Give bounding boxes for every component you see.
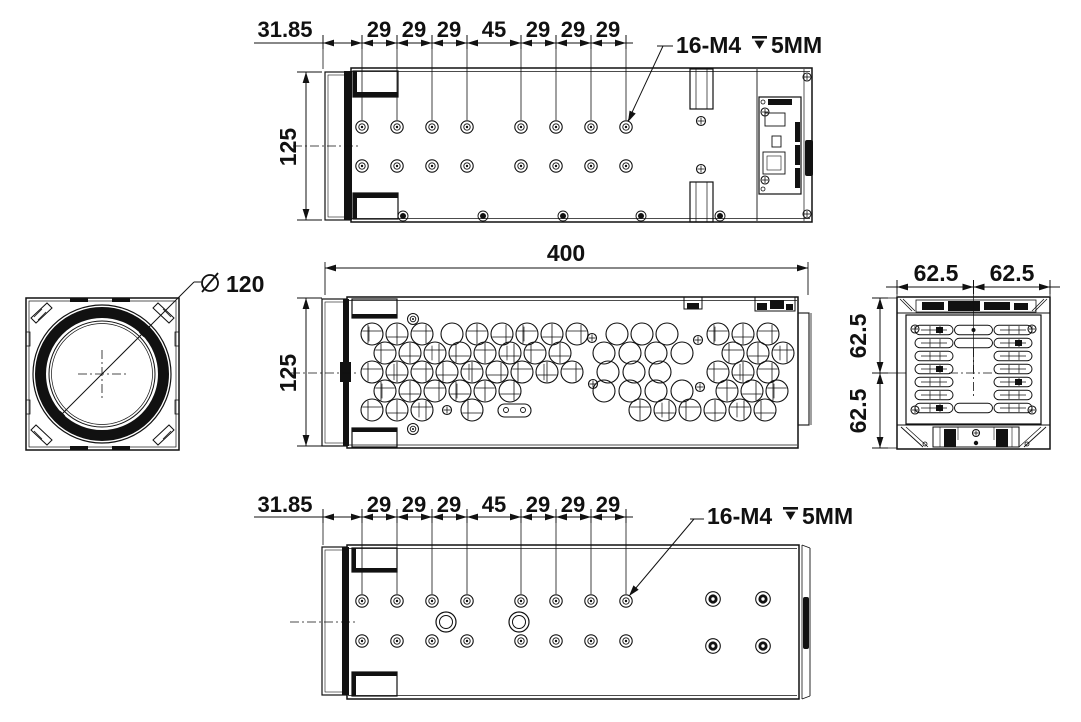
top-dim-chain [254,35,633,120]
callout-thread: 16-M4 [676,32,741,58]
drawing-primitive [996,429,1008,447]
top-view: 31.85 29 29 29 45 29 29 29 125 16-M4 5MM [254,17,822,222]
drawing-primitive [1015,340,1022,346]
bottom-view: 31.85 29 29 29 45 29 29 29 16-M4 5MM [254,492,853,699]
dim-31.85: 31.85 [257,492,312,517]
drawing-primitive [461,399,483,421]
drawing-primitive [499,342,521,364]
top-thread-callout: 16-M4 5MM [625,32,822,123]
drawing-primitive [625,640,627,642]
drawing-primitive [630,519,694,595]
drawing-primitive [521,408,526,413]
drawing-primitive [440,616,453,629]
drawing-primitive [31,303,52,323]
drawing-primitive [638,213,644,219]
dim-29: 29 [596,492,620,517]
drawing-primitive [566,323,588,345]
drawing-primitive [353,193,357,219]
drawing-primitive [687,303,699,309]
lens-diameter-callout: 120 [202,271,264,297]
drawing-primitive [690,69,713,109]
drawing-primitive [449,342,471,364]
drawing-primitive [590,165,592,167]
drawing-primitive [877,373,884,384]
rear-view: 62.5 62.5 62.5 62.5 [845,260,1060,449]
drawing-primitive [347,545,799,699]
drawing-primitive [412,428,414,430]
drawing-primitive [761,644,764,647]
drawing-primitive [431,165,433,167]
drawing-primitive [436,361,458,383]
drawing-primitive [361,165,363,167]
drawing-primitive [590,126,592,128]
drawing-primitive [352,314,397,318]
dim-29: 29 [367,17,391,42]
drawing-primitive [466,165,468,167]
drawing-primitive [486,361,508,383]
dim-125: 125 [275,354,301,393]
drawing-primitive [972,328,976,332]
drawing-primitive [361,600,363,602]
drawing-primitive [411,323,433,345]
dim-29: 29 [596,17,620,42]
drawing-primitive [707,323,729,345]
drawing-primitive [631,323,653,345]
drawing-primitive [153,425,174,445]
drawing-primitive [936,366,943,372]
drawing-primitive [424,380,446,402]
drawing-primitive [352,568,397,572]
drawing-primitive [555,165,557,167]
drawing-primitive [786,304,793,310]
drawing-primitive [431,126,433,128]
drawing-primitive [729,399,751,421]
drawing-primitive [520,165,522,167]
drawing-primitive [944,429,956,447]
dim-29: 29 [437,17,461,42]
drawing-primitive [770,300,784,309]
drawing-primitive [763,152,785,174]
drawing-primitive [112,446,130,450]
drawing-primitive [504,408,509,413]
drawing-primitive [480,213,486,219]
technical-drawing-page: 31.85 29 29 29 45 29 29 29 125 16-M4 5MM… [0,0,1081,722]
drawing-primitive [1035,299,1047,311]
dim-29: 29 [402,492,426,517]
callout-thread: 16-M4 [707,503,772,529]
drawing-primitive [431,640,433,642]
front-view: 400 125 [275,240,811,448]
dim-125: 125 [275,128,301,167]
drawing-primitive [877,298,884,309]
drawing-primitive [741,380,763,402]
drawing-primitive [649,361,671,383]
drawing-primitive [361,323,383,345]
top-view-body [293,68,813,222]
drawing-primitive [520,126,522,128]
lens-view: 120 [26,271,264,450]
drawing-primitive [511,361,533,383]
drawing-primitive [303,435,310,446]
callout-depth: 5MM [771,32,822,58]
drawing-primitive [1014,303,1028,310]
drawing-primitive [922,302,944,310]
drawing-primitive [711,597,714,600]
dim-29: 29 [526,492,550,517]
dim-45: 45 [482,492,506,517]
drawing-primitive [412,318,414,320]
drawing-primitive [520,600,522,602]
drawing-primitive [351,68,812,222]
drawing-primitive [466,640,468,642]
drawing-primitive [353,92,398,97]
drawing-primitive [303,72,310,83]
drawing-primitive [561,361,583,383]
dim-62.5: 62.5 [990,260,1035,286]
drawing-primitive [936,405,943,411]
drawing-primitive [361,361,383,383]
drawing-primitive [593,380,615,402]
drawing-primitive [411,361,433,383]
drawing-primitive [340,362,351,382]
drawing-primitive [903,299,915,311]
dim-29: 29 [437,492,461,517]
drawing-primitive [374,342,396,364]
drawing-primitive [625,165,627,167]
drawing-primitive [948,301,980,311]
drawing-primitive [325,265,336,272]
drawing-primitive [597,361,619,383]
drawing-primitive [772,136,781,147]
drawing-primitive [783,507,798,510]
drawing-primitive [795,168,800,188]
callout-depth: 5MM [802,503,853,529]
drawing-primitive [805,140,813,176]
drawing-primitive [303,209,310,220]
drawing-primitive [55,327,149,421]
drawing-primitive [467,40,478,47]
depth-symbol-icon [783,507,798,520]
drawing-primitive [625,126,627,128]
drawing-primitive [628,46,663,121]
drawing-primitive [352,672,397,676]
drawing-primitive [936,327,943,333]
drawing-primitive [901,427,923,447]
lens-view-body [26,282,201,450]
drawing-primitive [606,323,628,345]
drawing-primitive [524,342,546,364]
bottom-dim-chain [254,509,633,594]
depth-symbol-icon [752,36,767,49]
drawing-primitive [623,361,645,383]
drawing-primitive [974,441,978,445]
drawing-primitive [352,548,356,572]
bottom-thread-callout: 16-M4 5MM [626,503,853,598]
drawing-primitive [449,380,471,402]
dim-62.5: 62.5 [914,260,959,286]
drawing-primitive [31,425,52,445]
dim-62.5: 62.5 [845,313,871,358]
drawing-primitive [342,547,349,695]
drawing-primitive [513,616,526,629]
dim-29: 29 [402,17,426,42]
drawing-primitive [645,342,667,364]
drawing-primitive [906,427,928,447]
drawing-primitive [400,213,406,219]
drawing-primitive [303,298,310,309]
drawing-primitive [396,126,398,128]
drawing-primitive [466,126,468,128]
drawing-primitive [761,100,765,104]
drawing-primitive [711,644,714,647]
drawing-primitive [654,399,676,421]
drawing-primitive [323,514,334,521]
dim-29: 29 [526,17,550,42]
drawing-primitive [520,640,522,642]
drawing-primitive [510,514,521,521]
drawing-primitive [344,71,352,220]
rear-view-body [897,291,1050,449]
drawing-primitive [510,40,521,47]
drawing-primitive [396,165,398,167]
dim-120: 120 [226,271,264,297]
drawing-primitive [690,182,713,222]
drawing-primitive [361,399,383,421]
drawing-primitive [499,380,521,402]
leader-arrow [625,111,636,124]
drawing-primitive [555,126,557,128]
drawing-primitive [803,597,809,649]
drawing-primitive [590,640,592,642]
drawing-primitive [396,640,398,642]
drawing-primitive [786,512,796,520]
drawing-primitive [717,213,723,219]
drawing-primitive [795,145,800,165]
drawing-primitive [555,640,557,642]
drawing-primitive [1019,427,1041,447]
drawing-primitive [679,399,701,421]
drawing-primitive [1032,299,1044,311]
drawing-primitive [897,284,908,291]
drawing-primitive [802,696,810,699]
drawing-primitive [70,446,88,450]
drawing-primitive [955,403,993,412]
drawing-primitive [754,399,776,421]
drawing-primitive [361,126,363,128]
dim-62.5: 62.5 [845,388,871,433]
dim-29: 29 [561,492,585,517]
bottom-view-body [290,545,810,699]
drawing-primitive [593,342,615,364]
drawing-primitive [761,597,764,600]
front-view-body [291,297,811,448]
drawing-primitive [590,600,592,602]
drawing-primitive [768,99,792,105]
drawing-primitive [325,550,344,692]
drawing-canvas: 31.85 29 29 29 45 29 29 29 125 16-M4 5MM… [0,0,1081,722]
dim-45: 45 [482,17,506,42]
drawing-primitive [323,40,334,47]
drawing-primitive [798,313,809,425]
drawing-primitive [70,298,88,302]
drawing-primitive [353,193,398,198]
drawing-primitive [466,600,468,602]
drawing-primitive [795,122,800,142]
drawing-primitive [1015,379,1022,385]
drawing-primitive [352,672,356,696]
drawing-primitive [374,380,396,402]
drawing-primitive [112,298,130,302]
drawing-primitive [671,342,693,364]
drawing-primitive [396,600,398,602]
drawing-primitive [752,36,767,39]
drawing-primitive [757,303,767,310]
drawing-primitive [984,302,1010,310]
drawing-primitive [555,600,557,602]
drawing-primitive [467,514,478,521]
drawing-primitive [656,323,678,345]
drawing-primitive [755,41,765,49]
drawing-primitive [619,342,641,364]
drawing-primitive [1024,427,1046,447]
dim-29: 29 [367,492,391,517]
drawing-primitive [361,640,363,642]
drawing-primitive [411,399,433,421]
drawing-primitive [766,380,788,402]
drawing-primitive [347,297,798,448]
drawing-primitive [352,428,397,432]
dim-29: 29 [561,17,585,42]
drawing-primitive [877,362,884,373]
drawing-primitive [431,600,433,602]
drawing-primitive [351,40,362,47]
drawing-primitive [797,265,808,272]
drawing-primitive [560,213,566,219]
dim-400: 400 [547,240,585,266]
drawing-primitive [353,71,357,97]
drawing-primitive [351,514,362,521]
drawing-primitive [767,156,781,170]
drawing-primitive [802,545,810,548]
drawing-primitive [772,342,794,364]
drawing-primitive [1039,284,1050,291]
drawing-primitive [900,299,912,311]
drawing-primitive [877,437,884,448]
drawing-primitive [963,284,974,291]
drawing-primitive [498,404,531,417]
dim-31.85: 31.85 [257,17,312,42]
drawing-primitive [974,284,985,291]
drawing-primitive [424,342,446,364]
drawing-primitive [761,187,765,191]
drawing-primitive [625,600,627,602]
